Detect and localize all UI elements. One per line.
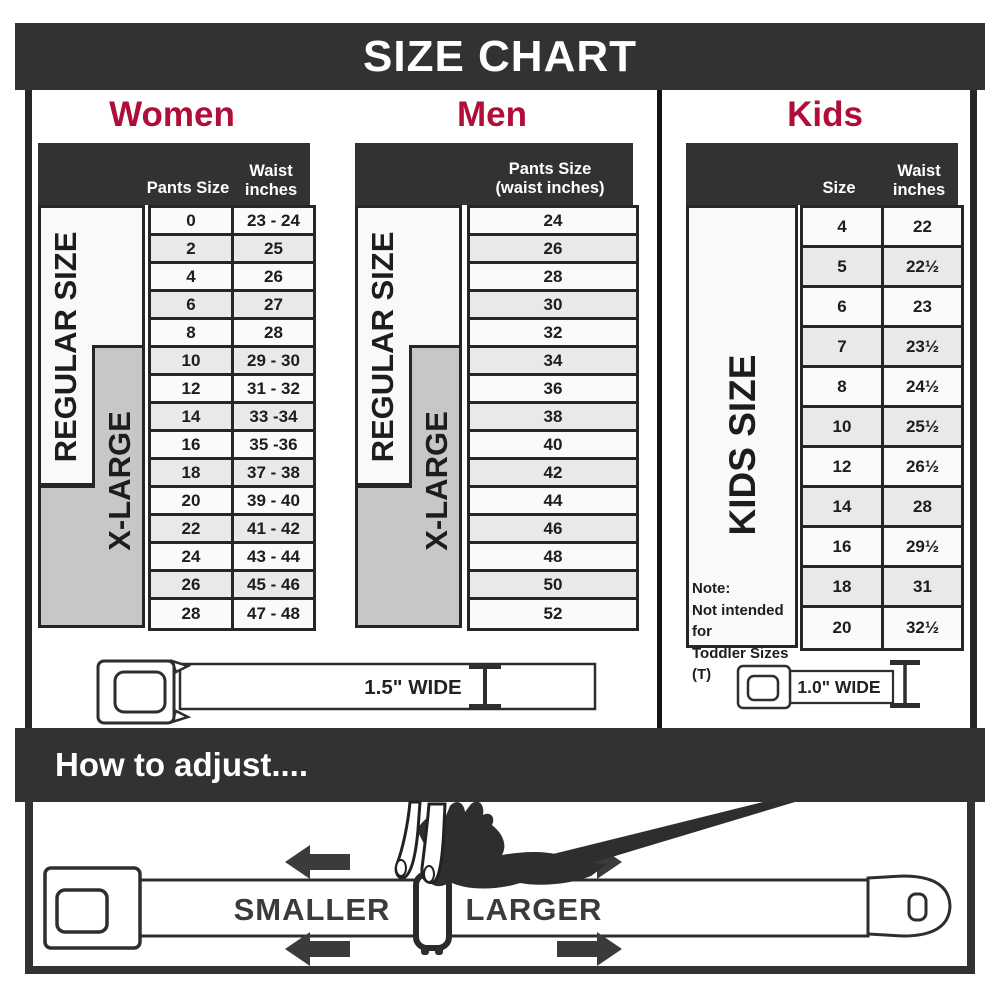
size-cell: 32 — [470, 320, 636, 348]
size-cell: 31 — [884, 568, 961, 608]
size-cell: 12 — [151, 376, 231, 404]
women-table-header: Pants Size Waist inches — [38, 143, 310, 205]
size-cell: 7 — [803, 328, 881, 368]
size-cell: 18 — [151, 460, 231, 488]
right-border — [970, 90, 977, 728]
arrow-left-icon — [285, 845, 350, 879]
title-bar: SIZE CHART — [15, 23, 985, 90]
men-size-col: 242628303234363840424446485052 — [467, 205, 639, 631]
size-cell: 8 — [803, 368, 881, 408]
men-x-large-label: X-LARGE — [419, 411, 454, 551]
size-cell: 48 — [470, 544, 636, 572]
belt-tip — [868, 876, 950, 936]
size-cell: 24 — [151, 544, 231, 572]
kids-size-col: 45678101214161820 — [800, 205, 884, 651]
size-cell: 14 — [151, 404, 231, 432]
size-cell: 43 - 44 — [234, 544, 313, 572]
section-heading-women: Women — [60, 92, 284, 138]
kids-belt-illustration: 1.0" WIDE — [730, 658, 930, 710]
size-cell: 50 — [470, 572, 636, 600]
kids-col-header-size: Size — [799, 179, 879, 198]
size-cell: 36 — [470, 376, 636, 404]
size-cell: 24 — [470, 208, 636, 236]
size-cell: 32½ — [884, 608, 961, 648]
size-cell: 2 — [151, 236, 231, 264]
size-cell: 23 — [884, 288, 961, 328]
size-cell: 22 — [884, 208, 961, 248]
men-table-header: Pants Size (waist inches) — [355, 143, 633, 205]
size-cell: 20 — [151, 488, 231, 516]
size-cell: 41 - 42 — [234, 516, 313, 544]
size-cell: 33 -34 — [234, 404, 313, 432]
size-cell: 38 — [470, 404, 636, 432]
size-cell: 4 — [803, 208, 881, 248]
women-size-col: 0246810121416182022242628 — [148, 205, 234, 631]
how-to-adjust-title: How to adjust.... — [55, 746, 308, 784]
women-regular-size-label: REGULAR SIZE — [48, 232, 83, 463]
size-cell: 24½ — [884, 368, 961, 408]
size-cell: 28 — [151, 600, 231, 628]
size-cell: 37 - 38 — [234, 460, 313, 488]
note-line: Note: — [692, 578, 798, 600]
size-cell: 26 — [470, 236, 636, 264]
women-x-large-label: X-LARGE — [102, 411, 137, 551]
seatbelt-buckle-icon — [738, 666, 790, 708]
size-cell: 28 — [234, 320, 313, 348]
size-cell: 4 — [151, 264, 231, 292]
width-measure-icon — [890, 660, 920, 708]
size-cell: 28 — [470, 264, 636, 292]
size-cell: 22 — [151, 516, 231, 544]
note-line: Not intended for — [692, 600, 798, 643]
size-cell: 45 - 46 — [234, 572, 313, 600]
kids-col-header-waist: Waist inches — [880, 162, 958, 200]
size-cell: 42 — [470, 460, 636, 488]
size-cell: 39 - 40 — [234, 488, 313, 516]
adult-belt-width-label: 1.5" WIDE — [364, 676, 461, 699]
kids-table-header: Size Waist inches — [686, 143, 958, 205]
size-cell: 5 — [803, 248, 881, 288]
size-cell: 40 — [470, 432, 636, 460]
size-cell: 26 — [234, 264, 313, 292]
size-cell: 29 - 30 — [234, 348, 313, 376]
size-cell: 44 — [470, 488, 636, 516]
size-cell: 16 — [803, 528, 881, 568]
size-chart-page: SIZE CHART Women Men Kids Pants Size Wai… — [0, 0, 1000, 1000]
kids-waist-col: 2222½2323½24½25½26½2829½3132½ — [881, 205, 964, 651]
men-regular-size-label: REGULAR SIZE — [365, 232, 400, 463]
size-cell: 26 — [151, 572, 231, 600]
seatbelt-buckle-icon — [98, 661, 188, 723]
size-cell: 14 — [803, 488, 881, 528]
size-cell: 16 — [151, 432, 231, 460]
size-cell: 23 - 24 — [234, 208, 313, 236]
belt-adjuster — [416, 874, 449, 955]
size-cell: 46 — [470, 516, 636, 544]
size-cell: 23½ — [884, 328, 961, 368]
men-size-label-boxes: REGULAR SIZE X-LARGE — [355, 205, 462, 628]
size-cell: 30 — [470, 292, 636, 320]
seatbelt-buckle-icon — [45, 868, 140, 948]
size-cell: 31 - 32 — [234, 376, 313, 404]
size-cell: 34 — [470, 348, 636, 376]
section-heading-men: Men — [380, 92, 604, 138]
women-waist-col: 23 - 242526272829 - 3031 - 3233 -3435 -3… — [231, 205, 316, 631]
size-cell: 28 — [884, 488, 961, 528]
left-border — [25, 90, 32, 728]
how-to-adjust-bar: How to adjust.... — [15, 728, 985, 802]
size-cell: 0 — [151, 208, 231, 236]
hand-icon — [396, 802, 795, 889]
size-cell: 18 — [803, 568, 881, 608]
size-cell: 20 — [803, 608, 881, 648]
page-title: SIZE CHART — [363, 32, 637, 82]
size-cell: 6 — [803, 288, 881, 328]
adult-belt-illustration: 1.5" WIDE — [90, 655, 610, 730]
kids-belt-width-label: 1.0" WIDE — [797, 677, 880, 697]
size-cell: 27 — [234, 292, 313, 320]
size-cell: 10 — [803, 408, 881, 448]
size-cell: 10 — [151, 348, 231, 376]
size-cell: 52 — [470, 600, 636, 628]
kids-section-divider — [657, 90, 662, 728]
women-col-header-pants-size: Pants Size — [143, 179, 233, 198]
size-cell: 29½ — [884, 528, 961, 568]
size-cell: 12 — [803, 448, 881, 488]
men-col-header: Pants Size (waist inches) — [490, 160, 610, 198]
women-col-header-waist: Waist inches — [231, 162, 311, 200]
adjust-illustration: SMALLER LARGER — [33, 802, 967, 966]
adjust-illustration-panel: SMALLER LARGER — [25, 802, 975, 974]
size-cell: 25½ — [884, 408, 961, 448]
size-cell: 25 — [234, 236, 313, 264]
kids-size-label: KIDS SIZE — [722, 355, 763, 536]
section-heading-kids: Kids — [713, 92, 937, 138]
size-cell: 6 — [151, 292, 231, 320]
size-cell: 8 — [151, 320, 231, 348]
size-cell: 22½ — [884, 248, 961, 288]
larger-label: LARGER — [466, 892, 603, 927]
smaller-label: SMALLER — [234, 892, 391, 927]
size-cell: 26½ — [884, 448, 961, 488]
size-cell: 47 - 48 — [234, 600, 313, 628]
size-cell: 35 -36 — [234, 432, 313, 460]
women-size-label-boxes: REGULAR SIZE X-LARGE — [38, 205, 145, 628]
